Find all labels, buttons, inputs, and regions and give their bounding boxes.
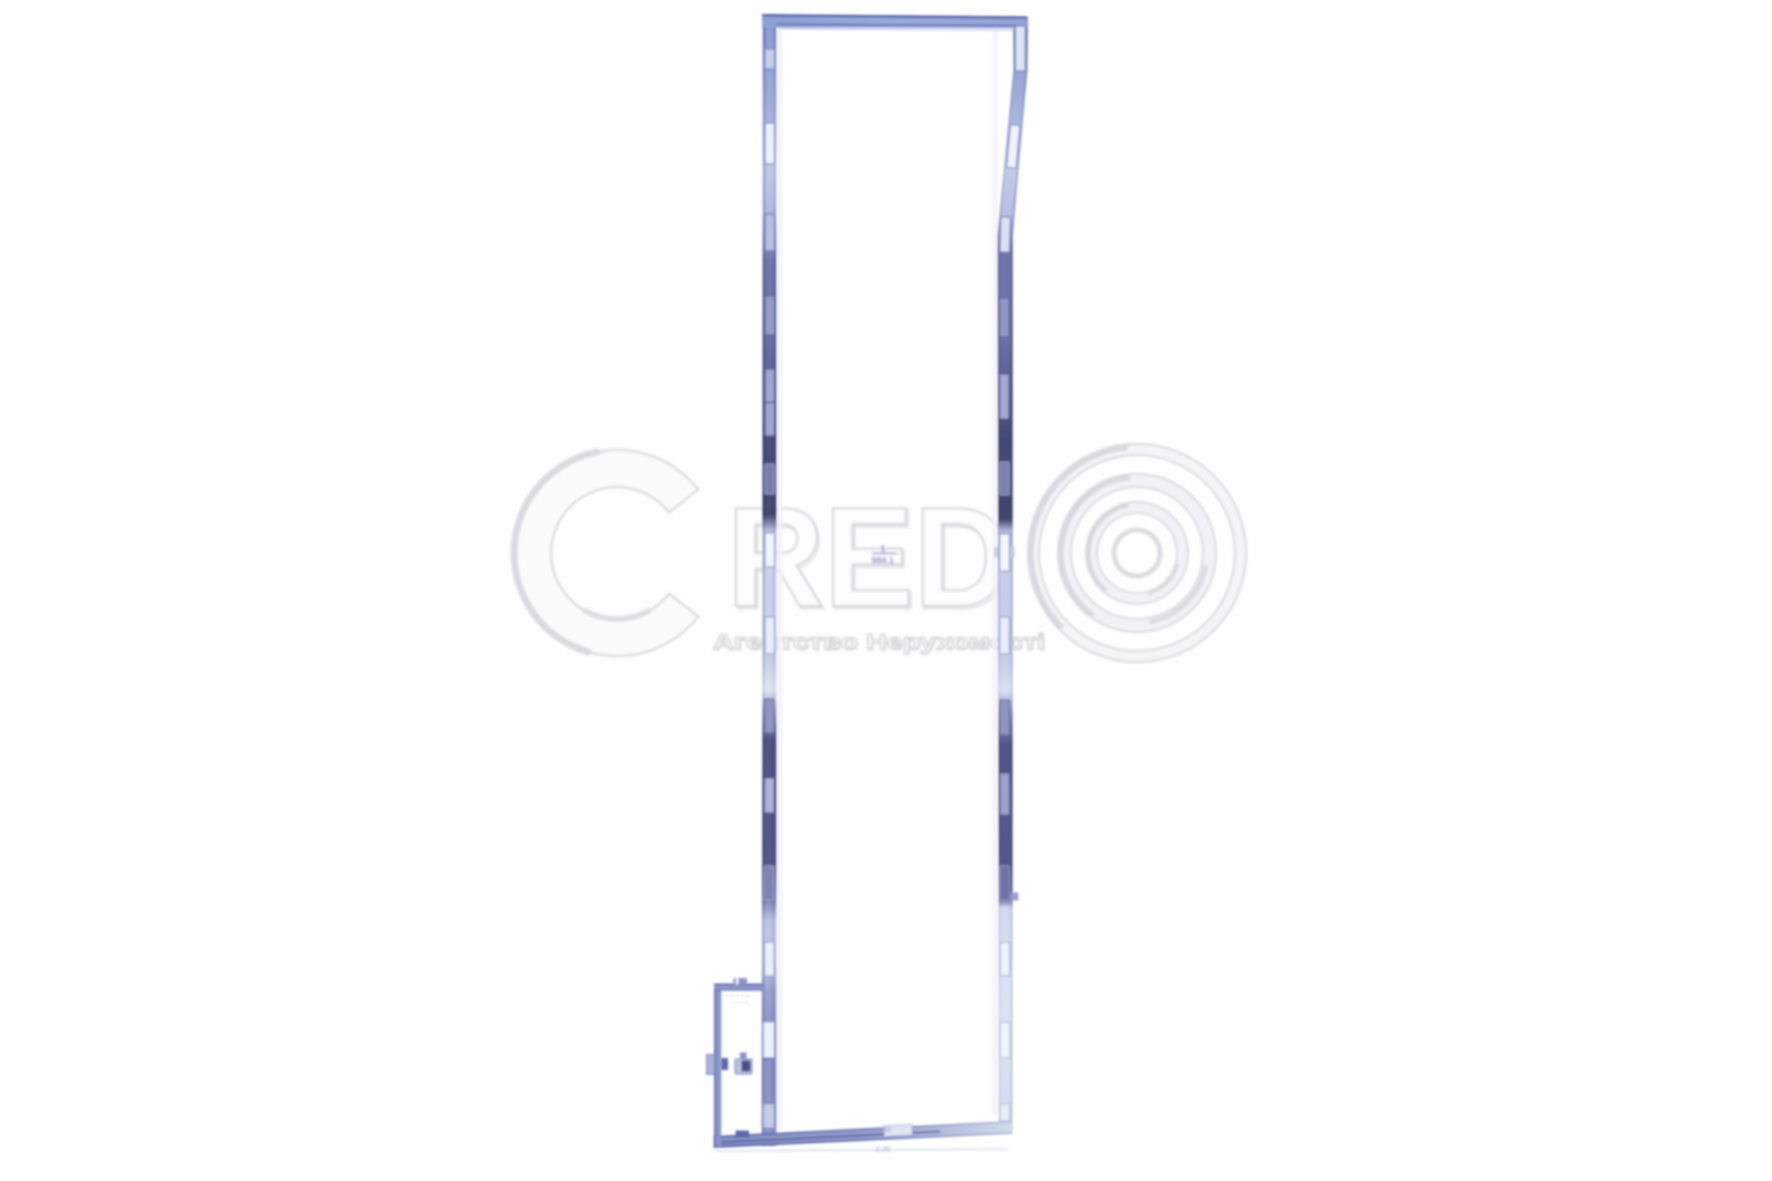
svg-text:1,50: 1,50	[877, 1125, 892, 1134]
svg-text:1: 1	[881, 544, 886, 554]
svg-text:2,20: 2,20	[876, 1145, 891, 1154]
svg-text:984.1: 984.1	[872, 556, 895, 566]
